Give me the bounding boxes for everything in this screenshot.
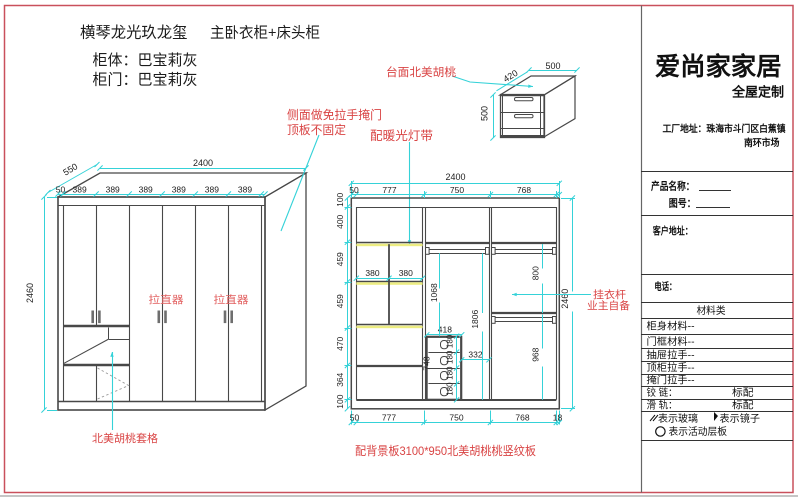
svg-text:500: 500 (480, 106, 490, 121)
svg-text:389: 389 (73, 184, 87, 194)
svg-text:门框材料--: 门框材料-- (647, 335, 695, 348)
svg-text:968: 968 (531, 347, 541, 361)
svg-text:364: 364 (335, 372, 345, 386)
svg-text:1806: 1806 (470, 309, 480, 328)
svg-text:业主自备: 业主自备 (587, 299, 631, 312)
svg-text:18: 18 (553, 412, 563, 422)
svg-text:180: 180 (446, 382, 455, 396)
svg-text:抽屉拉手--: 抽屉拉手-- (647, 348, 695, 361)
svg-text:横琴龙光玖龙玺: 横琴龙光玖龙玺 (80, 24, 188, 42)
svg-text:2400: 2400 (193, 158, 213, 168)
svg-text:180: 180 (446, 334, 455, 348)
svg-text:拉直器: 拉直器 (214, 293, 250, 306)
svg-text:1068: 1068 (429, 283, 439, 302)
svg-text:拉直器: 拉直器 (149, 293, 185, 306)
svg-text:侧面做免拉手掩门: 侧面做免拉手掩门 (287, 107, 382, 122)
svg-text:表示镜子: 表示镜子 (720, 412, 761, 425)
svg-text:748: 748 (422, 356, 432, 370)
svg-text:470: 470 (335, 336, 345, 350)
svg-text:表示玻璃: 表示玻璃 (658, 412, 698, 425)
svg-text:标配: 标配 (732, 387, 754, 399)
svg-text:电话：: 电话： (654, 280, 676, 293)
svg-text:500: 500 (545, 61, 560, 71)
svg-text:全屋定制: 全屋定制 (731, 84, 784, 100)
svg-text:顶板不固定: 顶板不固定 (287, 122, 346, 137)
svg-text:滑 轨：: 滑 轨： (647, 399, 678, 412)
svg-text:图号：: 图号： (669, 198, 696, 210)
svg-text:配背景板3100*950北美胡桃桃竖纹板: 配背景板3100*950北美胡桃桃竖纹板 (355, 443, 536, 458)
svg-text:南环市场: 南环市场 (744, 137, 780, 149)
svg-text:标配: 标配 (732, 400, 754, 412)
svg-text:50: 50 (349, 185, 359, 195)
svg-text:459: 459 (335, 252, 345, 266)
svg-text:800: 800 (531, 266, 541, 280)
svg-text:产品名称：: 产品名称： (651, 180, 695, 193)
svg-text:180: 180 (446, 350, 455, 364)
svg-text:2400: 2400 (445, 172, 465, 182)
svg-text:389: 389 (172, 184, 186, 194)
svg-text:顶柜拉手--: 顶柜拉手-- (647, 361, 695, 374)
svg-text:掩门拉手--: 掩门拉手-- (647, 374, 695, 387)
svg-text:777: 777 (382, 412, 396, 422)
svg-text:400: 400 (335, 214, 345, 228)
svg-text:表示活动层板: 表示活动层板 (669, 425, 728, 438)
svg-text:爱尚家家居: 爱尚家家居 (655, 52, 782, 81)
svg-text:180: 180 (446, 366, 455, 380)
svg-text:客户地址：: 客户地址： (652, 225, 693, 238)
svg-text:768: 768 (517, 185, 531, 195)
svg-text:389: 389 (205, 184, 219, 194)
svg-text:389: 389 (238, 184, 252, 194)
svg-text:459: 459 (335, 294, 345, 308)
svg-text:380: 380 (399, 268, 413, 278)
svg-text:2460: 2460 (560, 289, 570, 309)
svg-text:北美胡桃套格: 北美胡桃套格 (92, 431, 158, 445)
svg-text:铰 链：: 铰 链： (647, 386, 678, 399)
svg-text:50: 50 (56, 184, 66, 194)
svg-text:柜体：巴宝莉灰: 柜体：巴宝莉灰 (93, 52, 198, 69)
svg-text:332: 332 (468, 349, 482, 359)
svg-text:50: 50 (350, 412, 360, 422)
svg-text:100: 100 (335, 192, 345, 206)
svg-text:主卧衣柜+床头柜: 主卧衣柜+床头柜 (210, 25, 320, 42)
svg-text:材料类: 材料类 (697, 304, 726, 317)
svg-text:389: 389 (106, 184, 120, 194)
svg-text:380: 380 (365, 268, 379, 278)
svg-text:柜门：巴宝莉灰: 柜门：巴宝莉灰 (93, 72, 198, 89)
svg-text:777: 777 (382, 185, 396, 195)
svg-text:768: 768 (515, 412, 529, 422)
svg-text:工厂地址：珠海市斗门区白蕉镇: 工厂地址：珠海市斗门区白蕉镇 (663, 123, 786, 135)
svg-text:389: 389 (139, 184, 153, 194)
svg-text:100: 100 (335, 394, 345, 408)
svg-text:2460: 2460 (25, 283, 35, 303)
svg-text:750: 750 (449, 412, 463, 422)
svg-text:台面北美胡桃: 台面北美胡桃 (386, 65, 457, 79)
svg-text:柜身材料--: 柜身材料-- (647, 320, 695, 333)
svg-text:配暖光灯带: 配暖光灯带 (370, 129, 433, 143)
svg-text:750: 750 (450, 185, 464, 195)
